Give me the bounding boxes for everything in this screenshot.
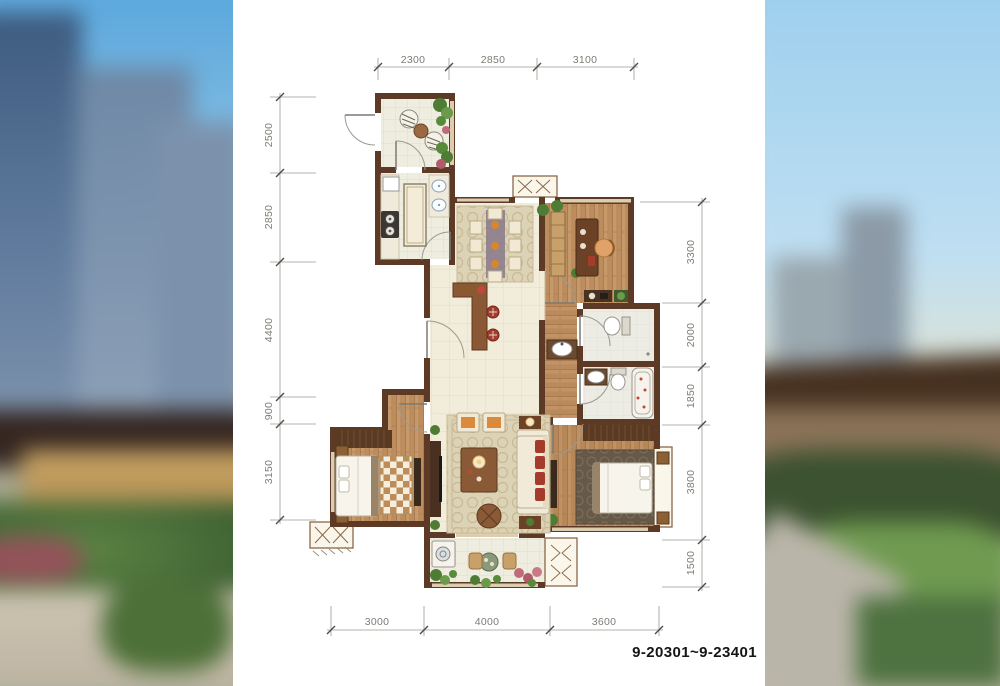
screenshot-root: 2300 2850 3100 3000 4000 3600 2500 2850 … bbox=[0, 0, 1000, 686]
nightstand bbox=[657, 452, 669, 464]
bay-window-top bbox=[513, 176, 557, 197]
wicker-chair bbox=[469, 553, 482, 569]
dim-left-2: 2850 bbox=[263, 205, 275, 230]
nightstand bbox=[657, 512, 669, 524]
dim-left-1: 2500 bbox=[263, 123, 275, 148]
dimensions-bottom: 3000 4000 3600 bbox=[327, 606, 663, 636]
tower-silhouette bbox=[0, 12, 82, 442]
dim-left-5: 3150 bbox=[263, 460, 275, 485]
bowl bbox=[477, 286, 485, 294]
pillow bbox=[339, 466, 349, 478]
bedroom2-entry-floor bbox=[388, 395, 424, 434]
window bbox=[331, 452, 335, 512]
wash-basin bbox=[588, 371, 605, 383]
pillow bbox=[339, 480, 349, 492]
dim-bottom-2: 4000 bbox=[475, 616, 500, 628]
flower-bed bbox=[0, 537, 82, 582]
dimensions-top: 2300 2850 3100 bbox=[374, 54, 638, 80]
dimensions-left: 2500 2850 4400 900 3150 bbox=[263, 93, 316, 524]
round-table bbox=[414, 124, 428, 138]
ac-platform bbox=[545, 538, 577, 586]
sliding-door bbox=[456, 533, 518, 537]
nightstand bbox=[336, 446, 348, 457]
toilet bbox=[604, 317, 620, 335]
plant bbox=[537, 204, 549, 216]
threshold bbox=[539, 268, 545, 320]
pillow bbox=[640, 466, 650, 477]
pillow bbox=[640, 479, 650, 490]
coffee-table bbox=[461, 448, 497, 492]
round-table bbox=[480, 553, 498, 571]
background-photo-left bbox=[0, 0, 233, 686]
tv-panel bbox=[414, 458, 421, 506]
dim-right-2: 2000 bbox=[685, 323, 697, 348]
hall-vanity bbox=[547, 340, 577, 359]
plant bbox=[551, 200, 563, 212]
blurred-buildings-right bbox=[765, 0, 1000, 686]
entry-door-arc bbox=[345, 115, 375, 145]
plant bbox=[430, 425, 440, 435]
kitchen-sink bbox=[383, 177, 399, 191]
tower-silhouette bbox=[157, 122, 233, 452]
toilet-tank bbox=[622, 317, 630, 335]
shrubs bbox=[857, 597, 1000, 686]
blurred-buildings-left bbox=[0, 0, 233, 686]
window bbox=[552, 528, 648, 532]
floorplan-drawing: 2300 2850 3100 3000 4000 3600 2500 2850 … bbox=[233, 0, 765, 686]
dim-left-4: 900 bbox=[263, 402, 275, 420]
unit-number-label: 9-20301~9-23401 bbox=[632, 644, 757, 661]
dim-top-1: 2300 bbox=[401, 54, 426, 66]
checkered-rug bbox=[380, 456, 412, 514]
dim-bottom-1: 3000 bbox=[365, 616, 390, 628]
window bbox=[457, 199, 509, 202]
plant bbox=[430, 520, 440, 530]
dim-right-5: 1500 bbox=[685, 551, 697, 576]
background-photo-right bbox=[765, 0, 1000, 686]
dim-top-3: 3100 bbox=[573, 54, 598, 66]
bathroom1-floor bbox=[583, 309, 654, 361]
dim-right-3: 1850 bbox=[685, 384, 697, 409]
dim-bottom-3: 3600 bbox=[592, 616, 617, 628]
wicker-chair bbox=[503, 553, 516, 569]
tv bbox=[439, 456, 442, 502]
bookshelf bbox=[551, 212, 565, 276]
dim-right-1: 3300 bbox=[685, 240, 697, 265]
toilet bbox=[611, 374, 625, 390]
window bbox=[560, 199, 631, 203]
dim-right-4: 3800 bbox=[685, 470, 697, 495]
floorplan-sheet: 2300 2850 3100 3000 4000 3600 2500 2850 … bbox=[233, 0, 765, 686]
shrubs bbox=[102, 582, 232, 672]
dim-top-2: 2850 bbox=[481, 54, 506, 66]
dim-left-3: 4400 bbox=[263, 318, 275, 343]
